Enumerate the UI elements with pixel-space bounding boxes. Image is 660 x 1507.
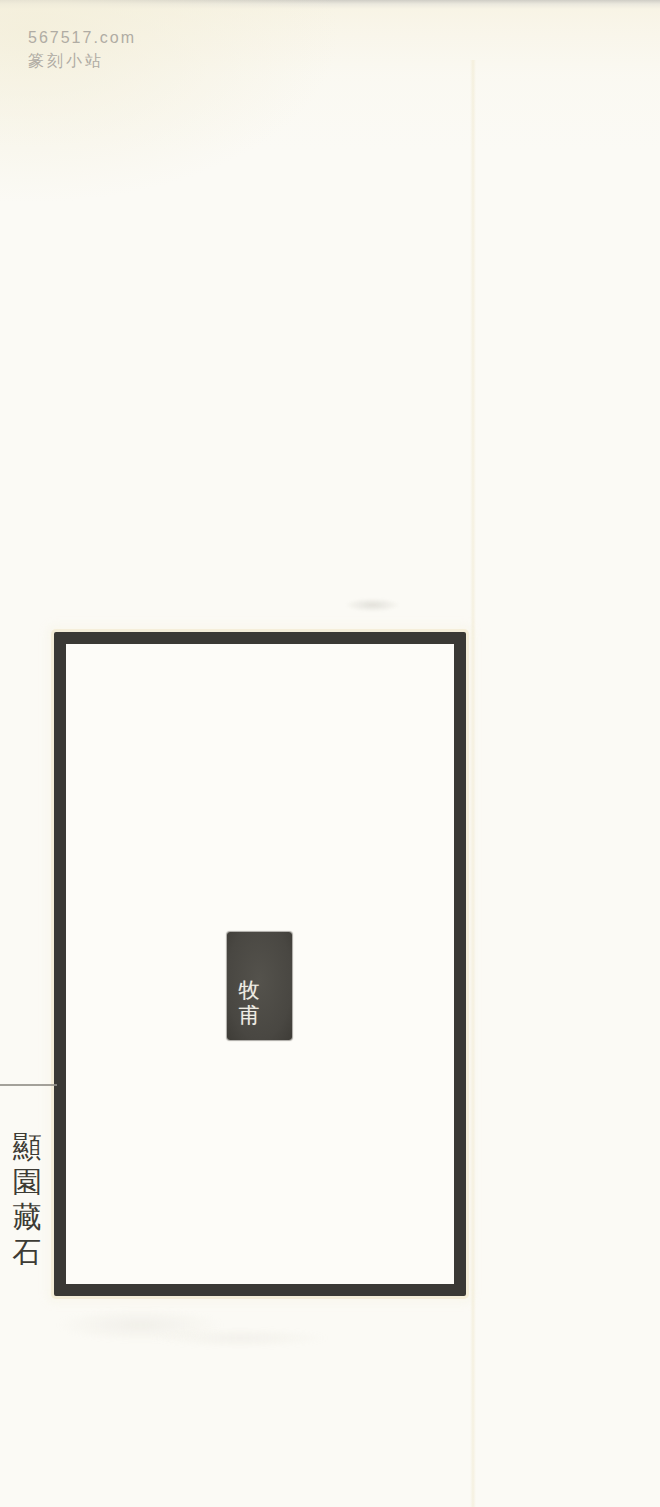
ink-smudge-above-frame: [345, 598, 400, 612]
seal-character: 甫: [239, 1003, 260, 1028]
caption-character: 石: [13, 1235, 42, 1270]
ink-smudge-below-frame: [55, 1308, 225, 1342]
caption-character: 顯: [13, 1130, 42, 1165]
watermark-site-name: 篆刻小站: [28, 50, 136, 72]
caption-rule: [0, 1084, 57, 1086]
seal-impression: 牧 甫: [227, 932, 292, 1040]
page-edge-crease: [470, 60, 476, 1507]
caption-character: 藏: [13, 1200, 42, 1235]
watermark: 567517.com 篆刻小站: [28, 28, 136, 72]
seal-character: 牧: [239, 978, 260, 1003]
side-caption: 顯 園 藏 石: [6, 1130, 48, 1270]
ink-smudge-below-frame: [150, 1328, 330, 1348]
caption-character: 園: [13, 1165, 42, 1200]
scanned-book-page: { "watermark": { "site": "567517.com", "…: [0, 0, 660, 1507]
seal-legend: 牧 甫: [236, 978, 262, 1028]
watermark-site-url: 567517.com: [28, 28, 136, 48]
